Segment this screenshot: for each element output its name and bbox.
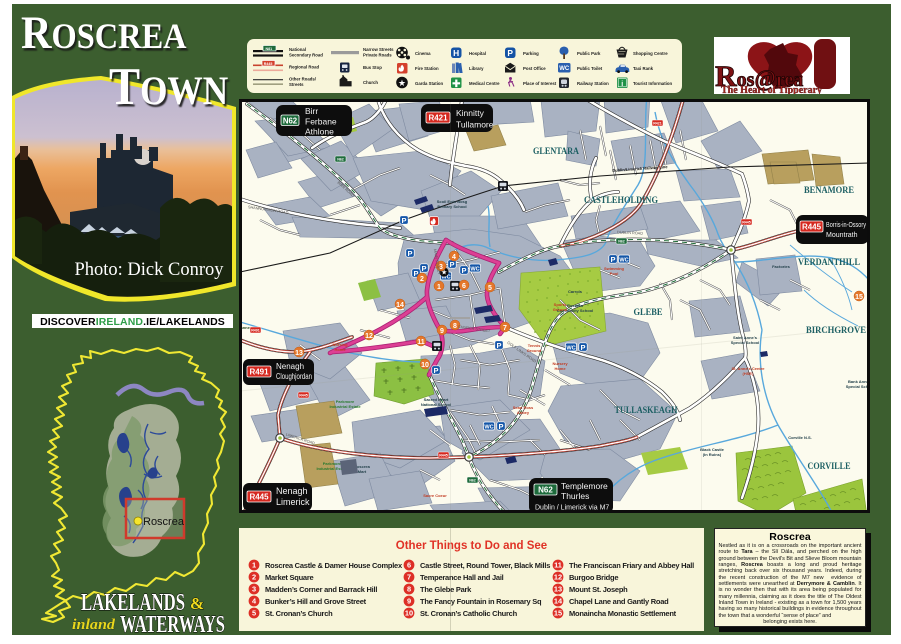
svg-text:WC: WC (484, 424, 493, 430)
svg-text:6: 6 (462, 283, 466, 290)
svg-text:St. Cronan’s Catholic Church: St. Cronan’s Catholic Church (420, 609, 518, 618)
svg-text:Monaincha Monastic Settlement: Monaincha Monastic Settlement (569, 609, 677, 618)
svg-text:R445: R445 (299, 394, 308, 398)
svg-text:Roscrea: Roscrea (143, 516, 185, 528)
svg-text:8: 8 (453, 323, 457, 330)
svg-text:Home: Home (554, 366, 566, 371)
svg-text:R491: R491 (251, 329, 260, 333)
svg-text:WC: WC (619, 257, 628, 263)
svg-text:8: 8 (407, 585, 411, 594)
svg-text:Public Toilet: Public Toilet (577, 66, 603, 71)
svg-text:Special School: Special School (846, 384, 870, 389)
svg-text:inland: inland (72, 617, 116, 633)
svg-text:Nenagh: Nenagh (276, 486, 308, 496)
svg-text:R445: R445 (742, 221, 751, 225)
svg-text:9: 9 (440, 328, 444, 335)
svg-text:The Heart of Tipperary: The Heart of Tipperary (721, 85, 822, 94)
svg-text:WC: WC (470, 266, 479, 272)
svg-text:1: 1 (437, 284, 441, 291)
svg-text:VERDANTHILL: VERDANTHILL (798, 257, 860, 267)
svg-text:Narrow Streets: Narrow Streets (363, 47, 394, 52)
svg-text:Church: Church (363, 80, 378, 85)
svg-text:CORVILLE: CORVILLE (808, 461, 851, 471)
svg-text:Railway Station: Railway Station (577, 81, 609, 86)
svg-text:Market Square: Market Square (265, 573, 314, 582)
svg-text:Home: Home (334, 347, 346, 352)
svg-text:&: & (190, 594, 204, 613)
svg-text:Madden’s Corner and Barrack Hi: Madden’s Corner and Barrack Hill (265, 585, 377, 594)
svg-text:P: P (433, 366, 438, 375)
svg-text:WATERWAYS: WATERWAYS (120, 612, 225, 635)
svg-text:Regional Road: Regional Road (289, 65, 319, 70)
svg-text:P: P (580, 343, 585, 352)
svg-text:Mount St. Joseph: Mount St. Joseph (569, 585, 628, 594)
svg-text:4: 4 (452, 254, 456, 261)
svg-text:Public Park: Public Park (577, 51, 601, 56)
svg-text:Cinema: Cinema (415, 51, 431, 56)
svg-text:Special School: Special School (731, 340, 759, 345)
svg-text:R445: R445 (249, 493, 269, 502)
svg-text:Carrols: Carrols (568, 289, 583, 294)
svg-text:BENAMORE: BENAMORE (804, 185, 854, 195)
svg-text:CASTLEHOLDING: CASTLEHOLDING (584, 195, 658, 205)
svg-text:P: P (498, 422, 503, 431)
svg-text:15: 15 (554, 609, 562, 618)
svg-text:Other Roads/: Other Roads/ (289, 77, 317, 82)
svg-text:Taxi Rank: Taxi Rank (633, 66, 654, 71)
svg-text:P: P (461, 266, 466, 275)
svg-text:11: 11 (554, 561, 562, 570)
svg-text:WC: WC (559, 66, 570, 72)
svg-text:Post Office: Post Office (523, 66, 546, 71)
svg-text:H: H (453, 48, 459, 58)
svg-text:The Glebe Park: The Glebe Park (420, 585, 472, 594)
svg-text:P: P (421, 264, 426, 273)
svg-text:Mountrath: Mountrath (826, 232, 858, 239)
svg-text:3: 3 (252, 585, 256, 594)
svg-text:Corville N.S.: Corville N.S. (788, 435, 812, 440)
svg-text:N62: N62 (283, 116, 298, 125)
svg-text:14: 14 (554, 597, 563, 606)
svg-text:The Franciscan Friary and Abbe: The Franciscan Friary and Abbey Hall (569, 561, 694, 570)
svg-text:6: 6 (407, 561, 411, 570)
svg-text:N62: N62 (337, 158, 344, 162)
svg-text:i: i (621, 81, 623, 88)
svg-text:Sacre Coeur: Sacre Coeur (423, 493, 447, 498)
svg-text:Limerick: Limerick (276, 497, 310, 507)
svg-text:13: 13 (554, 585, 562, 594)
svg-text:P: P (507, 48, 513, 58)
svg-text:R445: R445 (439, 454, 448, 458)
svg-text:Abbey: Abbey (517, 410, 530, 415)
svg-text:Kinnitty: Kinnitty (456, 108, 485, 118)
svg-text:N62: N62 (618, 240, 625, 244)
svg-text:Place of Interest: Place of Interest (523, 81, 557, 86)
svg-text:Birr: Birr (305, 106, 318, 116)
svg-text:Pool: Pool (610, 271, 619, 276)
svg-text:Library: Library (469, 66, 484, 71)
svg-text:13: 13 (295, 350, 303, 357)
svg-text:Roscrea Castle & Damer House C: Roscrea Castle & Damer House Complex (265, 561, 403, 570)
svg-text:Castle Street, Round Tower, Bl: Castle Street, Round Tower, Black Mills (420, 561, 550, 570)
svg-text:Shopping Centre: Shopping Centre (633, 51, 668, 56)
svg-text:11: 11 (417, 339, 425, 346)
svg-text:Ground: Ground (527, 348, 542, 353)
svg-text:N62: N62 (469, 479, 476, 483)
svg-text:Burgoo Bridge: Burgoo Bridge (569, 573, 618, 582)
svg-text:10: 10 (421, 362, 429, 369)
svg-text:Private Roads: Private Roads (363, 53, 392, 58)
svg-text:Ground: Ground (553, 307, 568, 312)
svg-text:5: 5 (488, 285, 492, 292)
svg-text:National: National (289, 47, 306, 52)
svg-text:Athlone: Athlone (305, 127, 334, 137)
svg-text:9: 9 (407, 597, 411, 606)
svg-text:Temperance Hall and Jail: Temperance Hall and Jail (420, 573, 504, 582)
svg-text:12: 12 (554, 573, 562, 582)
svg-text:Tourist Information: Tourist Information (633, 81, 672, 86)
svg-text:Medical Centre: Medical Centre (469, 81, 500, 86)
svg-text:Nenagh: Nenagh (276, 362, 304, 371)
svg-text:Industrial Estate: Industrial Estate (329, 404, 361, 409)
svg-text:R421: R421 (653, 122, 662, 126)
svg-text:Hospital: Hospital (469, 51, 486, 56)
svg-text:TULLASKEAGH: TULLASKEAGH (615, 405, 678, 415)
svg-text:N81: N81 (266, 47, 273, 51)
svg-text:Borris-in-Ossory: Borris-in-Ossory (826, 222, 866, 229)
svg-text:P: P (407, 249, 412, 258)
svg-text:Factories: Factories (772, 264, 791, 269)
svg-text:Mart: Mart (358, 469, 367, 474)
svg-text:WC: WC (566, 345, 575, 351)
svg-text:Fire Station: Fire Station (415, 66, 439, 71)
svg-text:P: P (496, 341, 501, 350)
svg-text:GLEBE: GLEBE (634, 307, 663, 317)
svg-text:2: 2 (420, 276, 424, 283)
svg-text:12: 12 (365, 333, 373, 340)
svg-text:Bus Stop: Bus Stop (363, 65, 382, 70)
svg-text:(In Ruins): (In Ruins) (703, 452, 722, 457)
svg-text:P: P (401, 216, 406, 225)
svg-text:7: 7 (407, 573, 411, 582)
svg-text:2: 2 (252, 573, 256, 582)
svg-text:P: P (610, 255, 615, 264)
svg-text:Garda Station: Garda Station (415, 81, 444, 86)
svg-text:Templemore: Templemore (561, 481, 608, 491)
svg-text:1: 1 (252, 561, 256, 570)
svg-text:10: 10 (405, 609, 413, 618)
svg-text:R445: R445 (264, 62, 273, 66)
svg-text:Bunker’s Hill and Grove Street: Bunker’s Hill and Grove Street (265, 597, 367, 606)
svg-text:The Fancy Fountain in Rosemary: The Fancy Fountain in Rosemary Sq (420, 597, 542, 606)
svg-text:5: 5 (252, 609, 256, 618)
svg-text:Streets: Streets (289, 82, 304, 87)
svg-text:GLENTARA: GLENTARA (533, 146, 579, 156)
svg-text:(HSE): (HSE) (743, 371, 755, 376)
svg-text:R491: R491 (249, 368, 269, 377)
svg-text:14: 14 (396, 302, 404, 309)
svg-text:Secondary Road: Secondary Road (289, 53, 323, 58)
svg-text:Parking: Parking (523, 51, 539, 56)
svg-text:R421: R421 (428, 114, 448, 123)
svg-text:15: 15 (855, 294, 863, 301)
svg-text:7: 7 (503, 325, 507, 332)
svg-text:Ferbane: Ferbane (305, 117, 337, 127)
svg-text:St. Cronan’s Church: St. Cronan’s Church (265, 609, 333, 618)
svg-text:Photo: Dick Conroy: Photo: Dick Conroy (74, 260, 224, 280)
svg-text:BIRCHGROVE: BIRCHGROVE (806, 325, 866, 335)
svg-text:Tullamore: Tullamore (456, 120, 494, 130)
svg-text:Thurles: Thurles (561, 491, 589, 501)
svg-text:Primary School: Primary School (437, 204, 466, 209)
svg-text:National School: National School (421, 402, 451, 407)
svg-text:Chapel Lane and Gantly Road: Chapel Lane and Gantly Road (569, 597, 669, 606)
svg-text:R445: R445 (802, 223, 822, 232)
svg-text:N62: N62 (538, 486, 553, 495)
svg-text:Cloughjordan: Cloughjordan (276, 372, 312, 381)
